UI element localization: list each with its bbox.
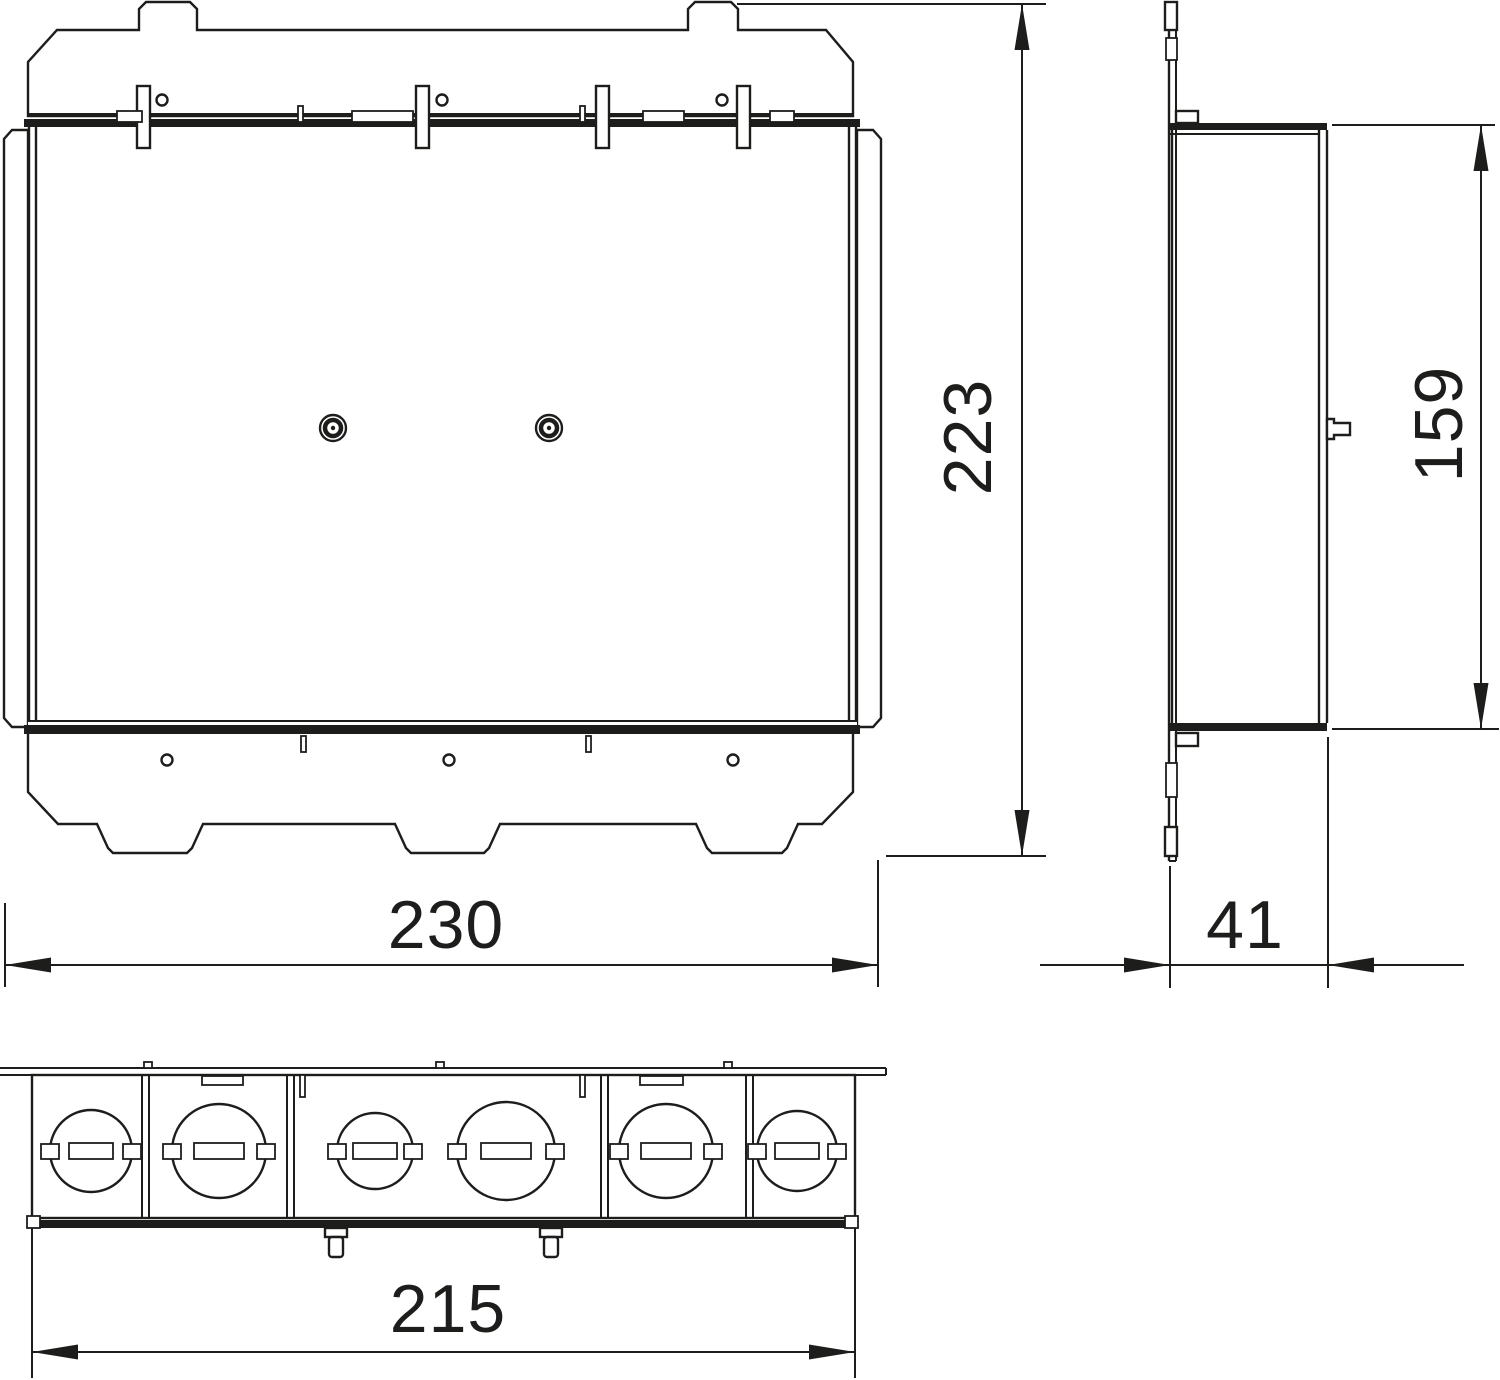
flange-hole [444,755,455,766]
arrowhead-right [832,958,878,973]
flange-slot [117,111,142,122]
mounting-claw [737,86,750,148]
dimension-bottom-width: 215 [32,1228,855,1378]
drawing-sheet: 223 230 [0,0,1500,1380]
left-rail [4,130,28,727]
arrowhead-left [5,958,51,973]
flange-hole [728,755,739,766]
flange-tick [586,736,591,752]
dim-label-side-height: 159 [1401,366,1477,482]
corner-piece [27,1216,40,1228]
flange-tick [580,106,585,122]
flange-hole [717,95,728,106]
dim-label-front-height: 223 [930,379,1006,495]
flange-tab-segment [1166,763,1177,797]
right-rail [857,130,881,727]
arrowhead-up [1015,4,1030,50]
bottom-flange [28,731,853,853]
dim-label-front-width: 230 [388,887,504,963]
flange-tick [298,106,303,122]
latch [1327,419,1350,439]
side-view [1165,2,1350,861]
technical-drawing: 223 230 [0,0,1500,1380]
strip-nub [436,1062,444,1068]
bottom-heavy-edge [32,1220,855,1228]
dimension-side-width: 41 [1040,737,1464,988]
arrowhead-left-tip [1328,958,1374,973]
cover-screw [536,415,562,441]
plug [540,1228,562,1257]
flange-tick [301,736,306,752]
flange-hole [437,95,448,106]
flange-slot [202,1076,243,1085]
dim-label-side-width: 41 [1206,887,1284,963]
dim-label-bottom-width: 215 [390,1271,506,1347]
bottom-heavy-edge [24,725,860,734]
flange-tick [300,1075,305,1097]
flange-slot [643,111,684,122]
bottom-body [32,1075,855,1218]
flange-hole [162,755,173,766]
arrowhead-up [1474,125,1489,171]
flange-tick [580,1075,585,1097]
arrowhead-right [809,1345,855,1360]
body-face [28,118,857,730]
flange-hole [157,95,168,106]
dimension-side-height: 159 [1332,125,1499,729]
cover-screw [320,415,346,441]
plug [325,1228,347,1257]
flange-tab-segment [1166,38,1177,60]
strip-nub [144,1062,152,1068]
top-bracket [1176,111,1198,123]
corner-piece [845,1216,858,1228]
flange-tab-bottom [1165,827,1177,856]
arrowhead-down [1474,683,1489,729]
bottom-view [0,1062,886,1257]
mounting-claw [416,86,429,148]
strip-nub [724,1062,732,1068]
flange-slot [352,111,413,122]
arrowhead-left [32,1345,78,1360]
flange-slot [640,1076,683,1085]
bottom-heavy-edge [1169,723,1327,731]
bottom-bracket [1176,733,1198,746]
flange-tab-top [1165,2,1177,30]
dimension-front-width: 230 [5,860,878,987]
mounting-claw [596,86,609,148]
flange-slot [770,111,794,122]
arrowhead-right-tip [1124,958,1170,973]
front-view [4,2,881,853]
arrowhead-down [1015,810,1030,856]
